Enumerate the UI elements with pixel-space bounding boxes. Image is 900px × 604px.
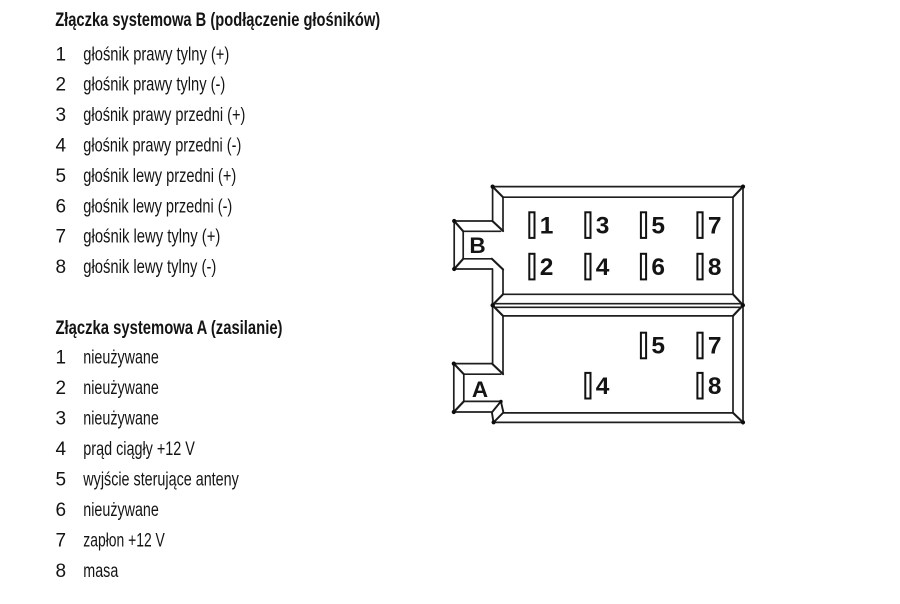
svg-text:głośnik lewy przedni (-): głośnik lewy przedni (-) <box>83 196 232 217</box>
svg-text:8: 8 <box>56 561 67 582</box>
svg-text:nieużywane: nieużywane <box>83 347 159 368</box>
svg-text:4: 4 <box>56 439 67 460</box>
svg-text:5: 5 <box>56 166 67 187</box>
svg-text:8: 8 <box>56 257 67 278</box>
svg-text:głośnik prawy tylny (-): głośnik prawy tylny (-) <box>83 75 225 96</box>
svg-text:7: 7 <box>708 212 722 239</box>
svg-text:6: 6 <box>651 254 665 281</box>
svg-text:1: 1 <box>56 347 67 368</box>
svg-text:Złączka systemowa B (podłączen: Złączka systemowa B (podłączenie głośnik… <box>55 10 380 31</box>
svg-text:nieużywane: nieużywane <box>83 500 159 521</box>
svg-text:7: 7 <box>56 227 67 248</box>
svg-text:nieużywane: nieużywane <box>83 409 159 430</box>
svg-text:6: 6 <box>56 196 67 217</box>
svg-text:głośnik lewy tylny (-): głośnik lewy tylny (-) <box>83 257 216 278</box>
svg-text:B: B <box>469 233 485 258</box>
svg-text:prąd ciągły +12 V: prąd ciągły +12 V <box>83 439 195 460</box>
svg-text:1: 1 <box>540 212 554 239</box>
svg-text:3: 3 <box>56 409 67 430</box>
svg-text:głośnik prawy przedni (+): głośnik prawy przedni (+) <box>83 105 245 126</box>
svg-text:2: 2 <box>540 254 554 281</box>
svg-text:Złączka systemowa A (zasilanie: Złączka systemowa A (zasilanie) <box>56 318 283 339</box>
svg-text:8: 8 <box>708 254 722 281</box>
svg-text:2: 2 <box>56 75 67 96</box>
svg-text:głośnik prawy tylny (+): głośnik prawy tylny (+) <box>83 44 229 65</box>
svg-text:zapłon +12 V: zapłon +12 V <box>83 531 165 552</box>
svg-text:nieużywane: nieużywane <box>83 378 159 399</box>
svg-text:4: 4 <box>596 254 610 281</box>
svg-text:2: 2 <box>56 378 67 399</box>
svg-text:głośnik lewy tylny (+): głośnik lewy tylny (+) <box>83 227 220 248</box>
svg-text:8: 8 <box>708 373 722 400</box>
svg-text:głośnik prawy przedni (-): głośnik prawy przedni (-) <box>83 136 241 157</box>
svg-text:A: A <box>472 377 488 402</box>
svg-text:7: 7 <box>708 333 722 360</box>
svg-text:6: 6 <box>56 500 67 521</box>
svg-text:3: 3 <box>56 105 67 126</box>
svg-text:7: 7 <box>56 531 67 552</box>
svg-text:4: 4 <box>56 136 67 157</box>
svg-text:5: 5 <box>651 212 665 239</box>
svg-text:5: 5 <box>56 470 67 491</box>
svg-text:4: 4 <box>596 373 610 400</box>
svg-text:wyjście sterujące anteny: wyjście sterujące anteny <box>83 470 240 491</box>
svg-text:5: 5 <box>651 333 665 360</box>
svg-text:głośnik lewy przedni (+): głośnik lewy przedni (+) <box>83 166 236 187</box>
svg-text:masa: masa <box>83 561 118 582</box>
svg-text:3: 3 <box>596 212 610 239</box>
svg-text:1: 1 <box>56 44 67 65</box>
